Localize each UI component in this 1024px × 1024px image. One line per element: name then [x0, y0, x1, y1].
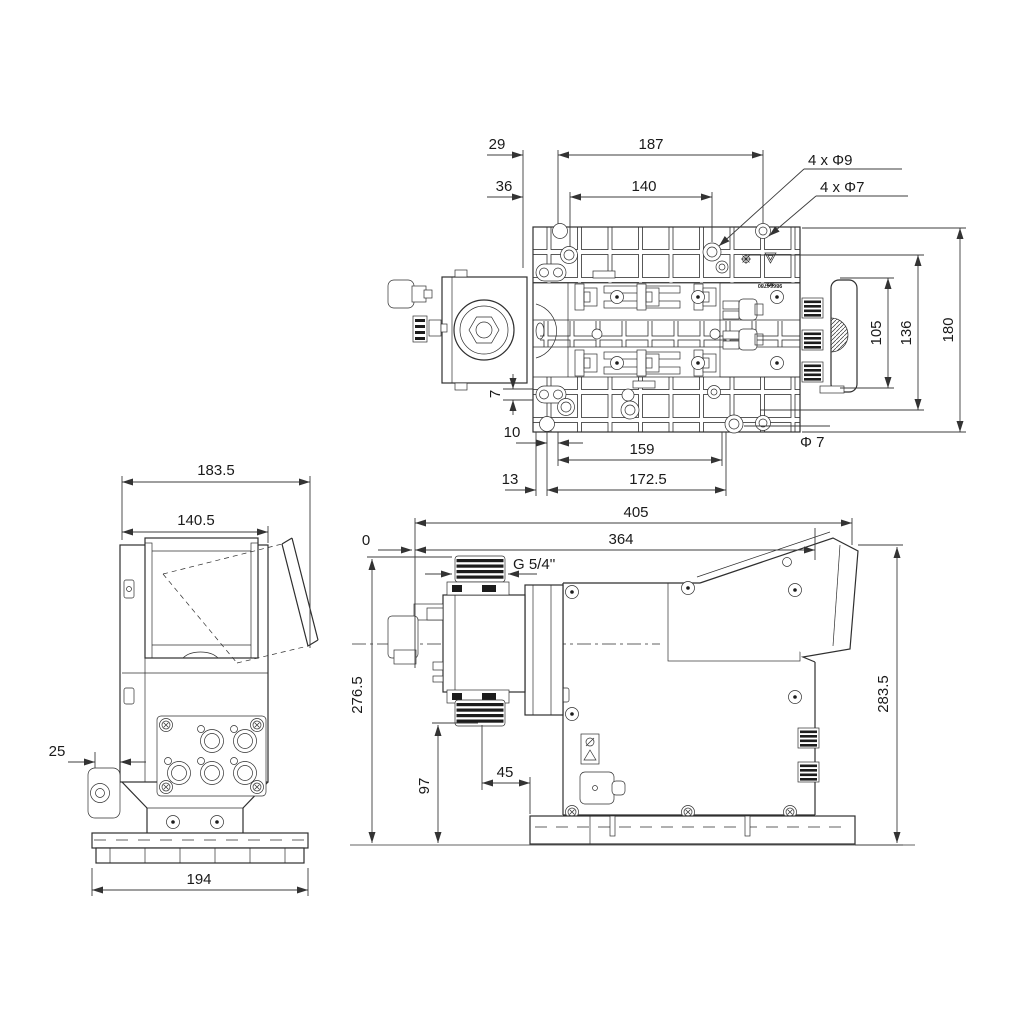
front-view-display-cover — [145, 538, 258, 658]
dim-4xphi7: 4 x Φ7 — [820, 179, 865, 196]
dim-25: 25 — [49, 743, 66, 760]
dim-140_5: 140.5 — [177, 512, 215, 529]
dim-7: 7 — [487, 390, 504, 398]
part-marking-number: 98664780 — [758, 282, 782, 288]
dim-13: 13 — [502, 471, 519, 488]
dim-4xphi9: 4 x Φ9 — [808, 152, 853, 169]
dim-136: 136 — [898, 320, 915, 345]
dimensional-drawing: x/x 98664780 — [0, 0, 1024, 1024]
dim-0: 0 — [362, 532, 370, 549]
io-connector-1 — [798, 728, 819, 748]
dim-10: 10 — [504, 424, 521, 441]
dim-g54: G 5/4'' — [513, 556, 556, 573]
dim-364: 364 — [608, 531, 633, 548]
dim-187: 187 — [638, 136, 663, 153]
dim-159: 159 — [629, 441, 654, 458]
paper-background — [0, 0, 1024, 1024]
io-connector-2 — [798, 762, 819, 782]
dim-180: 180 — [940, 317, 957, 342]
molded-gear-icon — [741, 254, 751, 264]
discharge-thread — [455, 556, 505, 582]
suction-thread — [455, 700, 505, 726]
front-view-connector-plate — [157, 716, 266, 796]
dim-276_5: 276.5 — [349, 676, 366, 714]
dim-45: 45 — [497, 764, 514, 781]
drawing-page: x/x 98664780 — [0, 0, 1024, 1024]
dim-405: 405 — [623, 504, 648, 521]
dim-29: 29 — [489, 136, 506, 153]
front-view-wall-bracket — [88, 768, 120, 818]
dim-183_5: 183.5 — [197, 462, 235, 479]
dim-172_5: 172.5 — [629, 471, 667, 488]
dim-36: 36 — [496, 178, 513, 195]
dim-283_5: 283.5 — [875, 675, 892, 713]
dim-194: 194 — [186, 871, 211, 888]
dim-140: 140 — [631, 178, 656, 195]
dim-97: 97 — [416, 778, 433, 795]
warning-label — [581, 734, 599, 764]
front-view-base — [92, 833, 308, 863]
dim-phi7: Φ 7 — [800, 434, 824, 451]
dim-105: 105 — [868, 320, 885, 345]
